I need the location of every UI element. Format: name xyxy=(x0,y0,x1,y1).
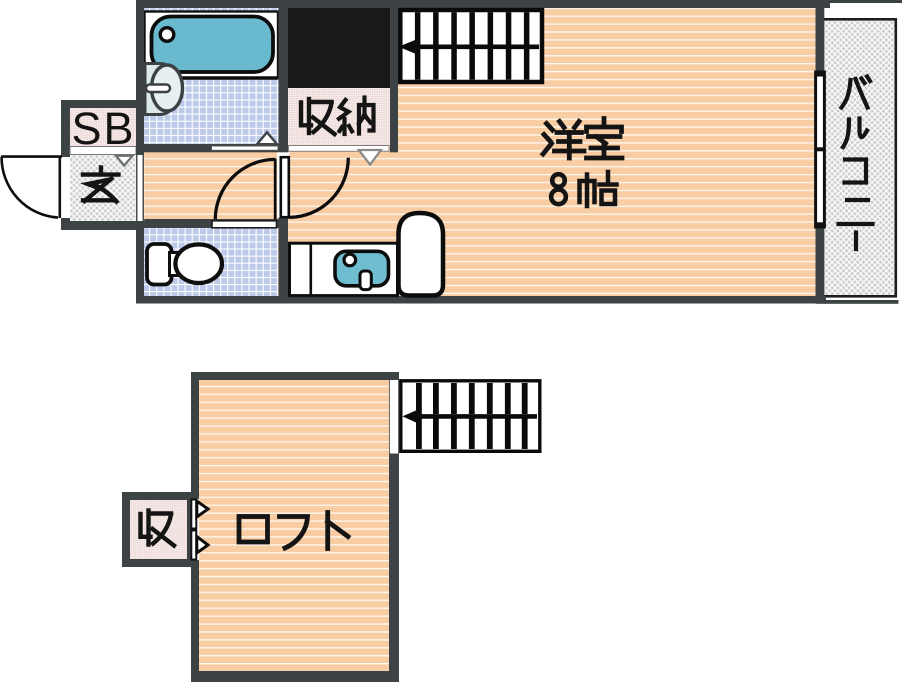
svg-text:SB: SB xyxy=(71,103,135,154)
